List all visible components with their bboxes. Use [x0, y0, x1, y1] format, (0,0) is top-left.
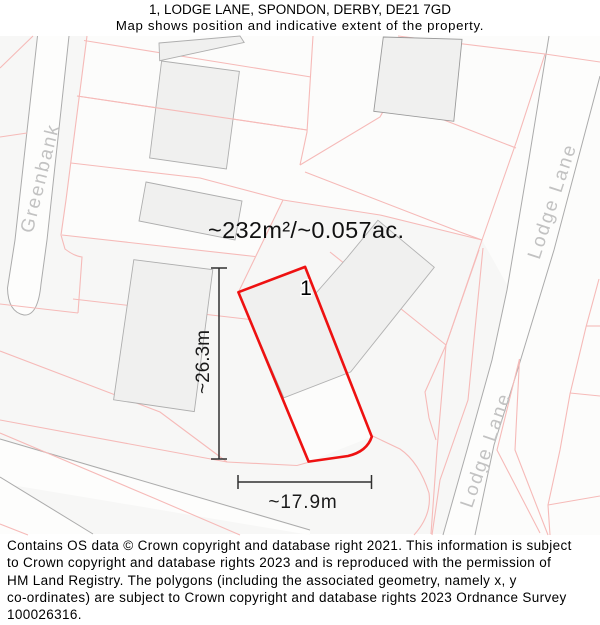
svg-text:~232m²/~0.057ac.: ~232m²/~0.057ac. — [208, 217, 404, 243]
svg-text:~26.3m: ~26.3m — [193, 330, 214, 394]
svg-text:1: 1 — [300, 277, 312, 300]
svg-text:~17.9m: ~17.9m — [268, 492, 337, 513]
